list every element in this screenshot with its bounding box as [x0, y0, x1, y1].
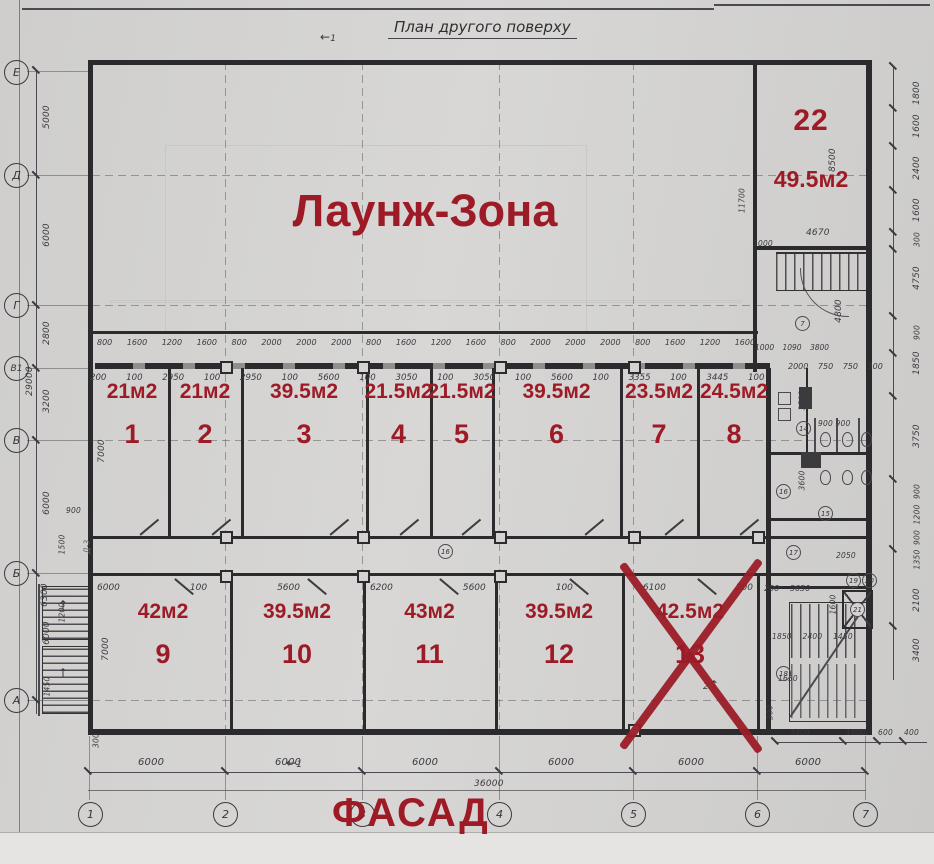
- room-5: 21.5м2 5: [433, 380, 490, 450]
- dim-label: 1600: [829, 592, 838, 618]
- axis-bubble-1: 1: [78, 802, 103, 827]
- sheet-border: [22, 8, 714, 10]
- leader-line: [499, 736, 500, 800]
- room-area: 21м2: [107, 380, 158, 404]
- up-arrow-icon: ↑: [58, 666, 68, 680]
- wall: [866, 60, 872, 735]
- column: [628, 531, 641, 544]
- toilet-icon: [820, 470, 831, 485]
- room-number: 11: [415, 639, 444, 670]
- circled-number: 18: [776, 666, 791, 681]
- dim-label: 2800: [42, 316, 52, 350]
- room-22-number: 22: [755, 106, 867, 136]
- sheet-border: [714, 4, 930, 6]
- room-number: 1: [124, 419, 139, 450]
- circled-number: 17: [786, 545, 801, 560]
- dim-label: 1600: [846, 728, 866, 737]
- door-swing: [329, 519, 348, 536]
- dim-label: 1450: [43, 670, 52, 704]
- axis-bubble-B: Б: [4, 561, 29, 586]
- circled-number: 20: [862, 573, 877, 588]
- axis-bubble-A: А: [4, 688, 29, 713]
- dim-label: 6000: [42, 486, 52, 520]
- door-swing: [584, 519, 603, 536]
- room-number: 8: [726, 419, 741, 450]
- dim-label: 6000: [42, 218, 52, 252]
- grid-line: [92, 700, 868, 701]
- room-area: 21.5м2: [427, 380, 495, 404]
- circled-number: 14: [796, 421, 811, 436]
- axis-bubble-4: 4: [487, 802, 512, 827]
- dim-label: 6000: [548, 757, 574, 768]
- dim-label: 1800: [912, 76, 922, 110]
- door-swing: [664, 519, 683, 536]
- dim-label: 3200: [42, 384, 52, 418]
- room-area: 39.5м2: [263, 600, 331, 624]
- section-mark-1-top: ←1: [320, 30, 336, 44]
- room-3: 39.5м2 3: [244, 380, 364, 450]
- circled-number: 7: [795, 316, 810, 331]
- toilet-icon: [842, 470, 853, 485]
- axis-bubble-2: 2: [213, 802, 238, 827]
- room-number: 9: [155, 639, 170, 670]
- dim-tick: [839, 737, 847, 745]
- dim-label: 3500: [798, 387, 807, 415]
- dim-label: 1350: [913, 543, 922, 577]
- drawing-title: План другого поверху: [388, 18, 577, 39]
- dim-label: 6000: [678, 757, 704, 768]
- column: [494, 570, 507, 583]
- dim-label: 2050: [836, 551, 856, 560]
- dim-label: 5000: [42, 100, 52, 134]
- column: [220, 531, 233, 544]
- room-area: 43м2: [404, 600, 455, 624]
- dim-tick: [899, 737, 907, 745]
- room-7: 23.5м2 7: [623, 380, 695, 450]
- dim-tick: [771, 737, 779, 745]
- dim-label: 3400: [790, 728, 810, 737]
- section-mark-1-bottom: ←1: [286, 756, 302, 770]
- left-arrow-icon: ←: [320, 30, 330, 44]
- room-area: 39.5м2: [522, 380, 590, 404]
- room-number: 2: [197, 419, 212, 450]
- dim-label: 29000: [25, 359, 35, 403]
- floor-plan-scan: План другого поверху ←1: [0, 0, 934, 864]
- room-area: 24.5м2: [700, 380, 768, 404]
- room-number: 5: [454, 419, 469, 450]
- dim-label: 400: [904, 728, 919, 737]
- dim-label: 6000: [412, 757, 438, 768]
- column: [357, 570, 370, 583]
- room-6: 39.5м2 6: [495, 380, 618, 450]
- dim-line: [88, 772, 866, 773]
- left-arrow-icon: ←: [286, 756, 296, 770]
- dim-label: 4670: [806, 228, 830, 238]
- room-10: 39.5м2 10: [233, 600, 361, 670]
- dim-line: [893, 66, 894, 680]
- room-area: 42м2: [138, 600, 189, 624]
- dim-label: 600: [878, 728, 893, 737]
- dim-label: 3750: [912, 419, 922, 453]
- dim-label: 1600: [912, 109, 922, 143]
- dim-label: 2100: [912, 583, 922, 617]
- wall: [88, 331, 758, 334]
- leader-line: [865, 736, 866, 800]
- room-number: 6: [549, 419, 564, 450]
- circled-number: 16: [776, 484, 791, 499]
- dim-label: 900: [66, 506, 81, 515]
- dim-tick: [873, 737, 881, 745]
- axis-bubble-7: 7: [853, 802, 878, 827]
- room-11: 43м2 11: [366, 600, 493, 670]
- facade-label: ФАСАД: [332, 793, 490, 833]
- door-swing: [139, 519, 158, 536]
- room-9: 42м2 9: [98, 600, 228, 670]
- column: [494, 531, 507, 544]
- room-area: 39.5м2: [525, 600, 593, 624]
- dim-label: 4750: [912, 261, 922, 295]
- room-2: 21м2 2: [171, 380, 239, 450]
- dim-label: 3600: [798, 467, 807, 495]
- toilet-icon: [842, 432, 853, 447]
- dim-tick: [84, 767, 92, 775]
- leader-line: [225, 736, 226, 800]
- wc-partition: [858, 418, 860, 454]
- dim-label: 3400: [912, 633, 922, 667]
- dim-label: 1850: [912, 346, 922, 380]
- dim-row-vestibule: 1000 1090 3800: [755, 343, 867, 352]
- circled-number: 21: [850, 602, 865, 617]
- toilet-icon: [820, 432, 831, 447]
- erased-sketch: [110, 300, 742, 303]
- room-area: 39.5м2: [270, 380, 338, 404]
- room-number: 12: [544, 639, 574, 670]
- dim-label: 1000: [753, 239, 773, 248]
- room-number: 3: [296, 419, 311, 450]
- dim-row-bottom-rooms: 6000 100 5600 6200 5600 100 6100 200: [97, 583, 753, 593]
- lounge-zone-label: Лаунж-Зона: [95, 188, 755, 233]
- dim-label: 1200: [58, 599, 67, 627]
- dim-label: 4800: [834, 296, 844, 326]
- room-12: 39.5м2 12: [498, 600, 620, 670]
- room-area: 21м2: [180, 380, 231, 404]
- dim-row-right-top: 2000 750 750 300: [788, 362, 924, 371]
- dim-label: 36000: [474, 779, 504, 789]
- column: [752, 531, 765, 544]
- axis-bubble-6: 6: [745, 802, 770, 827]
- axis-bubble-E: Е: [4, 60, 29, 85]
- balcony-hatch: [776, 252, 866, 291]
- room-8: 24.5м2 8: [700, 380, 768, 450]
- wall: [771, 518, 866, 521]
- wall: [88, 60, 93, 735]
- circled-number: 15: [818, 506, 833, 521]
- room-number: 10: [282, 639, 312, 670]
- axis-bubble-G: Г: [4, 293, 29, 318]
- dim-label: 6000: [795, 757, 821, 768]
- wc-partition: [814, 418, 816, 454]
- room-area: 23.5м2: [625, 380, 693, 404]
- toilet-icon: [861, 432, 872, 447]
- dim-label: 6000: [138, 757, 164, 768]
- column: [220, 570, 233, 583]
- dim-row-windows: 800 1600 1200 1600 800 2000 2000 2000 80…: [97, 338, 757, 347]
- dim-label: 2400: [912, 151, 922, 185]
- dim-label: 300: [913, 223, 922, 257]
- note-stair: Д-3: [83, 536, 92, 558]
- axis-bubble-V: В: [4, 428, 29, 453]
- door-swing: [399, 519, 418, 536]
- paper-edge: [0, 832, 934, 864]
- dim-label: 900 900: [818, 419, 850, 428]
- dim-label: 1500: [58, 531, 67, 559]
- axis-bubble-D: Д: [4, 163, 29, 188]
- room-4: 21.5м2 4: [369, 380, 428, 450]
- room-22-area: 49.5м2: [755, 168, 867, 191]
- grid-line: [92, 305, 868, 306]
- room-number: 4: [391, 419, 406, 450]
- dim-label: 300: [92, 731, 101, 751]
- sink-icon: [778, 408, 791, 421]
- room-area: 21.5м2: [364, 380, 432, 404]
- leader-line: [633, 736, 634, 800]
- room-1: 21м2 1: [98, 380, 166, 450]
- stair-treads: [791, 664, 863, 718]
- door-swing: [461, 519, 480, 536]
- dim-label: 6300: [40, 578, 50, 612]
- wall: [88, 729, 872, 735]
- axis-bubble-5: 5: [621, 802, 646, 827]
- column: [357, 531, 370, 544]
- erased-sketch: [165, 145, 587, 332]
- dim-label: 300: [766, 703, 775, 723]
- wall: [757, 576, 760, 731]
- room-number: 7: [651, 419, 666, 450]
- grid-line: [92, 175, 868, 176]
- leader-line: [89, 736, 90, 800]
- dim-label: 6000: [42, 616, 52, 650]
- toilet-icon: [861, 470, 872, 485]
- circled-number: 19: [846, 573, 861, 588]
- circled-number: 16: [438, 544, 453, 559]
- dim-label: 900: [913, 316, 922, 350]
- dim-label: 1850 2400 1450: [772, 632, 853, 641]
- dim-line: [36, 70, 37, 714]
- sink-icon: [778, 392, 791, 405]
